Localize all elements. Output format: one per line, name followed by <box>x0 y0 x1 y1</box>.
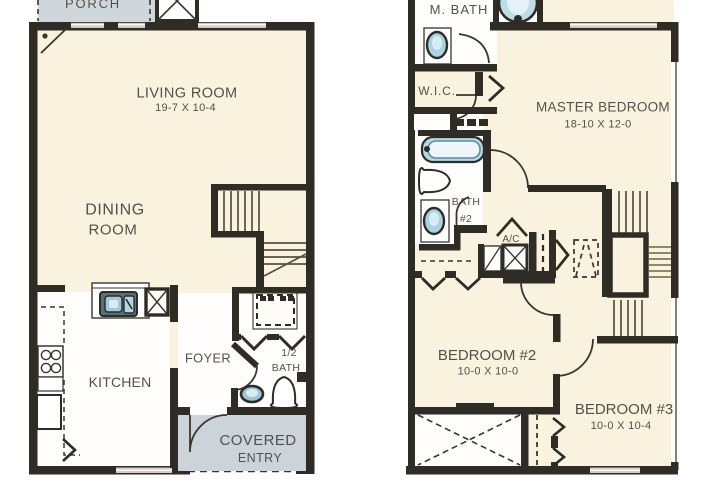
svg-text:1/2: 1/2 <box>281 347 297 359</box>
svg-text:10-0 X 10-4: 10-0 X 10-4 <box>591 420 652 432</box>
svg-text:BEDROOM #3: BEDROOM #3 <box>575 401 673 418</box>
svg-text:A/C: A/C <box>502 234 519 245</box>
svg-text:ENTRY: ENTRY <box>238 451 282 465</box>
svg-text:10-0 X 10-0: 10-0 X 10-0 <box>458 366 519 378</box>
svg-text:#2: #2 <box>460 213 472 225</box>
svg-text:FOYER: FOYER <box>185 351 231 366</box>
svg-text:KITCHEN: KITCHEN <box>89 374 152 390</box>
svg-text:M. BATH: M. BATH <box>430 2 489 17</box>
svg-text:18-10 X 12-0: 18-10 X 12-0 <box>564 119 631 131</box>
svg-text:PORCH: PORCH <box>65 0 121 11</box>
svg-text:LIVING ROOM: LIVING ROOM <box>136 86 237 102</box>
svg-text:W.I.C.: W.I.C. <box>418 84 455 98</box>
svg-text:DINING: DINING <box>85 202 145 219</box>
svg-text:ROOM: ROOM <box>88 222 137 239</box>
svg-text:BEDROOM #2: BEDROOM #2 <box>438 347 536 364</box>
svg-text:MASTER BEDROOM: MASTER BEDROOM <box>536 100 670 115</box>
svg-text:BATH: BATH <box>272 362 300 374</box>
svg-text:COVERED: COVERED <box>220 432 297 449</box>
svg-text:19-7 X 10-4: 19-7 X 10-4 <box>155 102 216 114</box>
